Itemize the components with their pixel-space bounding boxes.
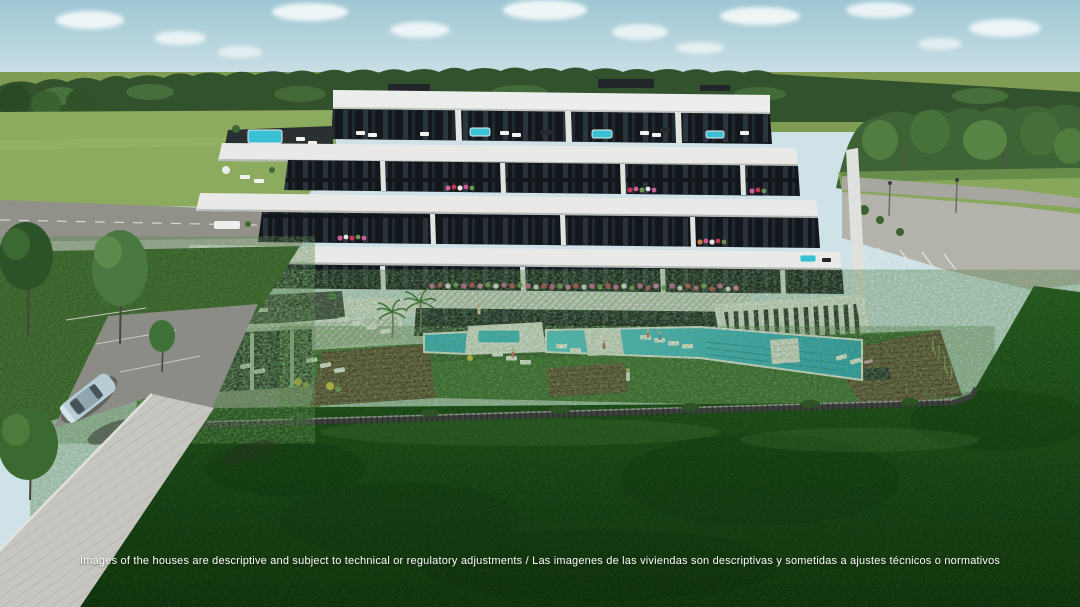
render-scene bbox=[0, 0, 1080, 607]
architectural-render: Images of the houses are descriptive and… bbox=[0, 0, 1080, 607]
disclaimer-label: Images of the houses are descriptive and… bbox=[80, 555, 1000, 567]
disclaimer-text: Images of the houses are descriptive and… bbox=[80, 555, 1060, 567]
